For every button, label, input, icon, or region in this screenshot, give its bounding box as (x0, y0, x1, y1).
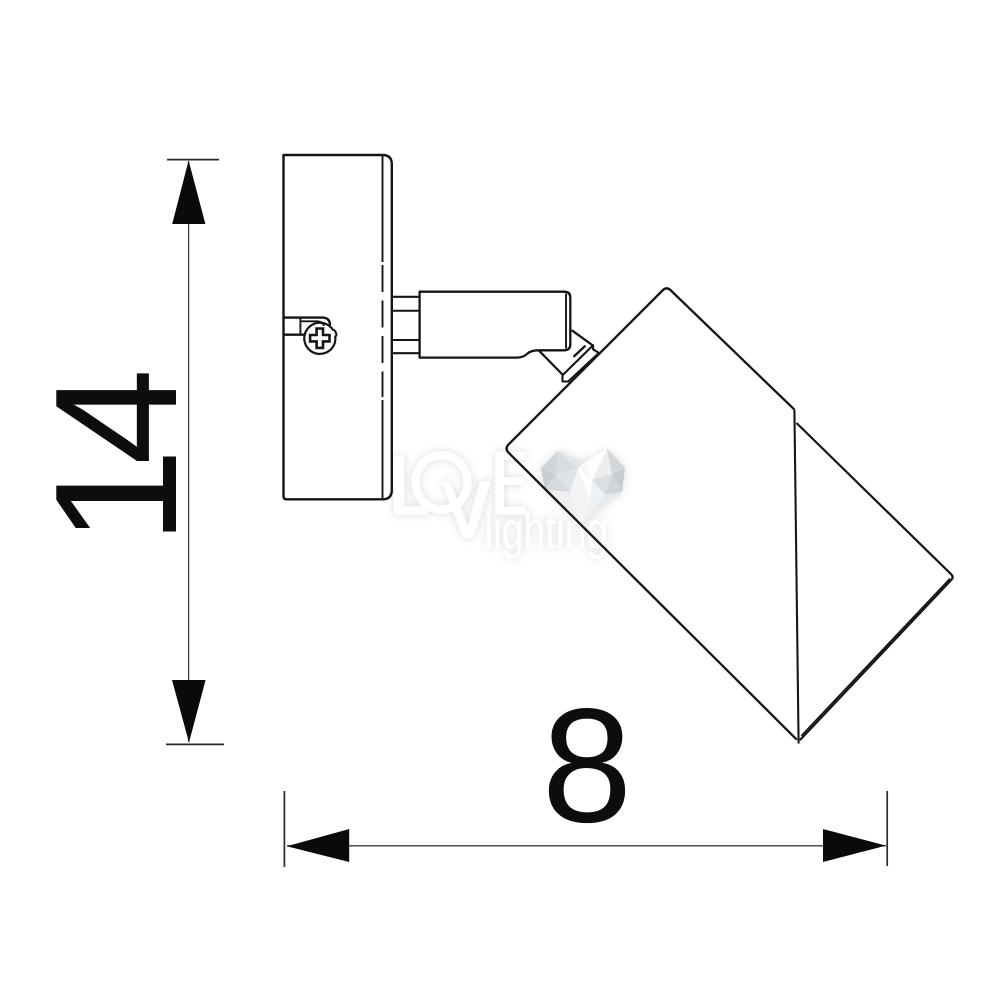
svg-text:14: 14 (18, 373, 213, 545)
svg-text:8: 8 (542, 676, 632, 857)
